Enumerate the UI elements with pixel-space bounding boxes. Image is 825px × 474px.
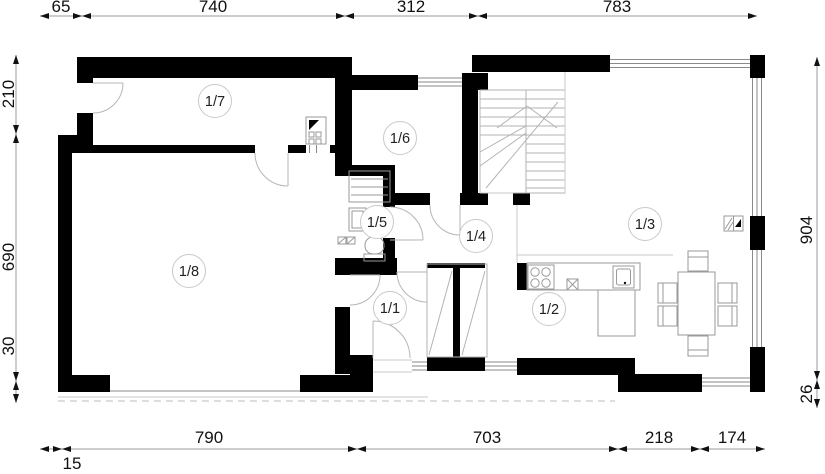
- door-entrance: [373, 321, 410, 358]
- door-room17-room18: [255, 153, 288, 186]
- svg-text:1/4: 1/4: [466, 229, 486, 245]
- dining-table: [678, 272, 715, 335]
- svg-text:1/3: 1/3: [635, 217, 655, 233]
- dimension-left: 210 690 30: [0, 55, 19, 403]
- dimension-bottom: 790 703 218 174 15: [40, 428, 765, 473]
- dim-bottom-secondary: 15: [63, 454, 82, 473]
- room-label-1-1: 1/1: [374, 292, 407, 325]
- chair: [688, 251, 708, 271]
- dim-top-0: 65: [52, 0, 71, 16]
- svg-text:1/2: 1/2: [539, 302, 559, 318]
- dim-bottom-3: 174: [718, 428, 746, 447]
- stove-icon: [528, 265, 554, 289]
- room-label-1-7: 1/7: [199, 85, 232, 118]
- room-label-1-6: 1/6: [384, 122, 417, 155]
- dim-bottom-1: 703: [473, 428, 501, 447]
- dining-set: [658, 251, 737, 356]
- dim-right-0: 904: [797, 216, 816, 244]
- door-room16: [430, 205, 460, 235]
- dim-left-1: 690: [0, 243, 18, 271]
- dim-left-0: 210: [0, 80, 18, 108]
- dim-top-3: 783: [603, 0, 631, 16]
- room-label-1-8: 1/8: [173, 255, 206, 288]
- dim-bottom-2: 218: [645, 428, 673, 447]
- chair: [718, 306, 737, 326]
- svg-text:1/7: 1/7: [205, 94, 225, 110]
- floor-plan-canvas: 1/7 1/6 1/5 1/4 1/3 1/8 1/1 1/2: [0, 0, 825, 474]
- room-label-1-4: 1/4: [460, 220, 493, 253]
- floor-plan-svg: 1/7 1/6 1/5 1/4 1/3 1/8 1/1 1/2: [0, 0, 825, 474]
- vent-icon: [724, 216, 743, 231]
- door-bathroom15: [390, 207, 423, 240]
- window-bottom-right: [702, 378, 750, 386]
- chair: [718, 283, 737, 303]
- kitchen-counter: [527, 263, 640, 290]
- dimension-right: 904 26: [797, 57, 820, 408]
- window-closet-bottom: [485, 362, 517, 370]
- room-label-1-2: 1/2: [533, 293, 566, 326]
- kitchen-island: [598, 290, 635, 336]
- window-top-glazing: [610, 60, 750, 68]
- chair: [658, 306, 677, 326]
- dim-top-1: 740: [199, 0, 227, 16]
- washer-icon: [338, 237, 355, 244]
- room-label-1-5: 1/5: [361, 206, 394, 239]
- appliance-icon: [567, 279, 578, 290]
- dimension-top: 65 740 312 783: [40, 0, 757, 19]
- door-room17-exterior: [93, 83, 123, 113]
- toilet-icon: [364, 237, 385, 261]
- svg-text:1/1: 1/1: [380, 301, 400, 317]
- window-right-upper: [753, 78, 762, 216]
- dim-left-2: 30: [0, 337, 18, 356]
- window-room16: [418, 78, 462, 86]
- chair: [688, 336, 708, 356]
- chimney-icon: [306, 117, 326, 153]
- svg-text:1/5: 1/5: [367, 215, 387, 231]
- dim-right-1: 26: [797, 385, 816, 404]
- svg-text:1/8: 1/8: [179, 264, 199, 280]
- svg-text:1/6: 1/6: [390, 131, 410, 147]
- dim-bottom-0: 790: [195, 428, 223, 447]
- room-label-1-3: 1/3: [629, 208, 662, 241]
- window-entry-sidelight: [412, 362, 427, 370]
- kitchen-sink-icon: [613, 266, 634, 288]
- dim-top-2: 312: [397, 0, 425, 16]
- window-right-lower: [753, 250, 762, 347]
- staircase: [480, 90, 565, 193]
- chair: [658, 283, 677, 303]
